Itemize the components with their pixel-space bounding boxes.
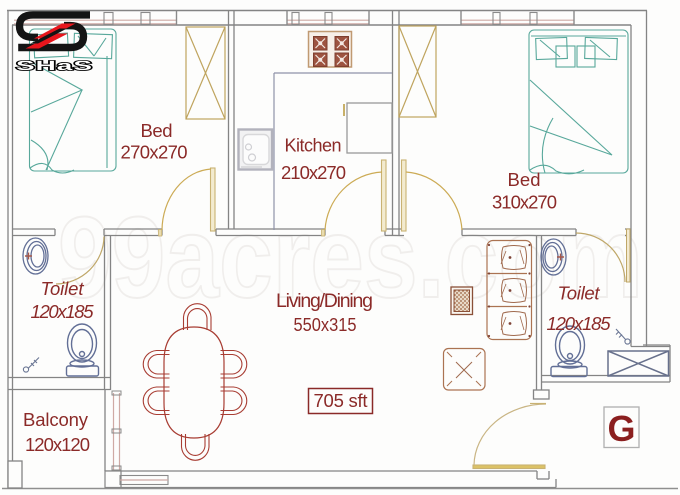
svg-text:G: G — [607, 408, 635, 449]
svg-text:SHaS: SHaS — [16, 58, 93, 73]
svg-text:Living/Dining: Living/Dining — [276, 290, 373, 312]
svg-text:270x270: 270x270 — [121, 142, 188, 163]
svg-text:Bed: Bed — [141, 120, 173, 141]
svg-text:Balcony: Balcony — [23, 409, 89, 430]
svg-text:210x270: 210x270 — [281, 162, 346, 183]
svg-text:Toilet: Toilet — [41, 278, 85, 299]
svg-text:Kitchen: Kitchen — [285, 136, 342, 156]
svg-text:Bed: Bed — [508, 169, 541, 190]
svg-text:550x315: 550x315 — [294, 314, 357, 335]
svg-text:120x120: 120x120 — [25, 434, 90, 455]
svg-text:120x185: 120x185 — [547, 313, 612, 334]
svg-text:Toilet: Toilet — [558, 283, 601, 304]
svg-text:310x270: 310x270 — [492, 192, 557, 213]
svg-text:120x185: 120x185 — [31, 301, 95, 322]
svg-text:705 sft: 705 sft — [314, 390, 368, 411]
